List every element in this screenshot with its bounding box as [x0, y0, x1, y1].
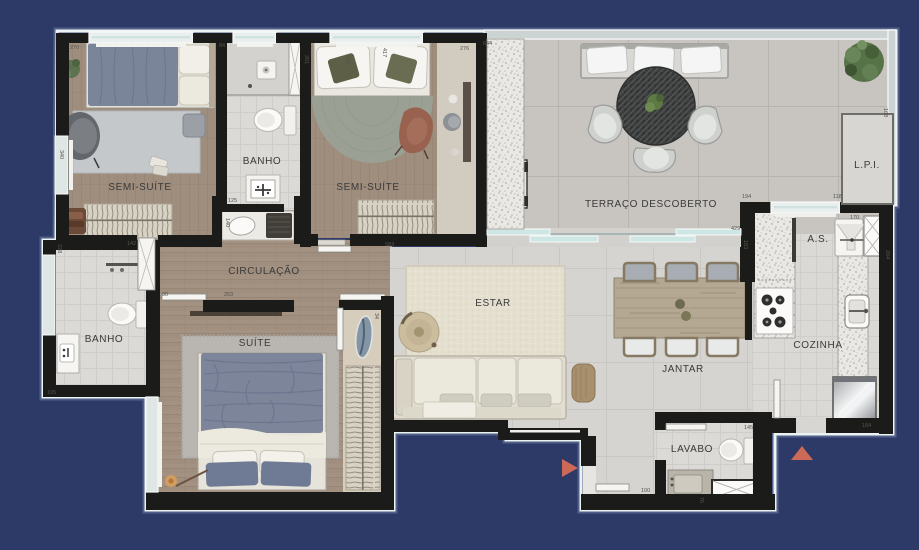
- svg-text:145: 145: [744, 425, 753, 431]
- svg-text:125: 125: [228, 198, 237, 204]
- svg-text:253: 253: [224, 292, 233, 298]
- svg-text:76: 76: [698, 497, 704, 503]
- svg-text:COZINHA: COZINHA: [793, 340, 842, 351]
- svg-text:170: 170: [850, 215, 859, 221]
- svg-text:228: 228: [56, 244, 62, 253]
- svg-text:263: 263: [344, 55, 350, 64]
- svg-text:ESTAR: ESTAR: [475, 298, 511, 309]
- svg-text:140: 140: [224, 218, 230, 227]
- svg-text:84: 84: [219, 43, 225, 49]
- svg-text:644: 644: [483, 41, 492, 47]
- svg-text:261: 261: [303, 55, 309, 64]
- svg-text:417: 417: [381, 48, 387, 57]
- svg-text:A.S.: A.S.: [807, 234, 828, 245]
- svg-text:108: 108: [882, 108, 888, 117]
- svg-text:90: 90: [162, 292, 168, 298]
- svg-text:SEMI-SUÍTE: SEMI-SUÍTE: [108, 180, 171, 193]
- svg-text:LAVABO: LAVABO: [671, 444, 713, 455]
- svg-text:183: 183: [742, 240, 748, 249]
- svg-text:142: 142: [127, 241, 136, 247]
- svg-text:429: 429: [731, 226, 740, 232]
- svg-text:JANTAR: JANTAR: [662, 364, 704, 375]
- svg-text:118: 118: [833, 194, 842, 200]
- svg-text:583: 583: [385, 242, 394, 248]
- svg-text:TERRAÇO DESCOBERTO: TERRAÇO DESCOBERTO: [585, 199, 717, 210]
- svg-text:SUÍTE: SUÍTE: [239, 336, 271, 349]
- svg-text:194: 194: [742, 194, 751, 200]
- svg-text:105: 105: [47, 390, 56, 396]
- svg-text:BANHO: BANHO: [243, 156, 282, 167]
- svg-text:100: 100: [641, 488, 650, 494]
- svg-text:184: 184: [862, 423, 871, 429]
- svg-text:L.P.I.: L.P.I.: [854, 160, 880, 171]
- svg-text:34: 34: [373, 313, 379, 319]
- svg-text:SEMI-SUÍTE: SEMI-SUÍTE: [336, 180, 399, 193]
- svg-text:CIRCULAÇÃO: CIRCULAÇÃO: [228, 264, 300, 277]
- svg-text:BANHO: BANHO: [85, 334, 124, 345]
- svg-text:276: 276: [460, 46, 469, 52]
- svg-text:204: 204: [884, 250, 890, 259]
- svg-text:270: 270: [70, 45, 79, 51]
- svg-text:340: 340: [58, 150, 64, 159]
